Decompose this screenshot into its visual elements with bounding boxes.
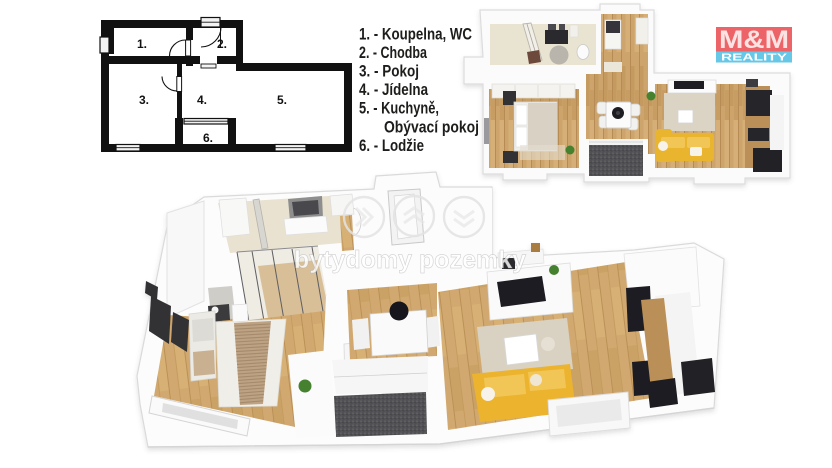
svg-text:3.: 3. xyxy=(139,93,149,107)
svg-text:5.: 5. xyxy=(277,93,287,107)
svg-text:1. - Koupelna, WC: 1. - Koupelna, WC xyxy=(359,26,472,44)
svg-text:2. - Chodba: 2. - Chodba xyxy=(359,44,428,62)
svg-text:REALITY: REALITY xyxy=(721,53,788,64)
svg-text:5. - Kuchyně,: 5. - Kuchyně, xyxy=(359,100,439,118)
svg-text:6. - Lodžie: 6. - Lodžie xyxy=(359,137,424,155)
svg-text:bytydomy pozemky: bytydomy pozemky xyxy=(294,246,526,274)
svg-text:4.: 4. xyxy=(197,93,207,107)
svg-text:2.: 2. xyxy=(217,37,227,51)
svg-text:4. - Jídelna: 4. - Jídelna xyxy=(359,81,429,99)
svg-text:3. - Pokoj: 3. - Pokoj xyxy=(359,63,419,81)
svg-text:1.: 1. xyxy=(137,37,147,51)
svg-text:Obývací pokoj: Obývací pokoj xyxy=(384,119,479,137)
svg-text:6.: 6. xyxy=(203,131,213,145)
svg-text:M&M: M&M xyxy=(719,26,789,54)
